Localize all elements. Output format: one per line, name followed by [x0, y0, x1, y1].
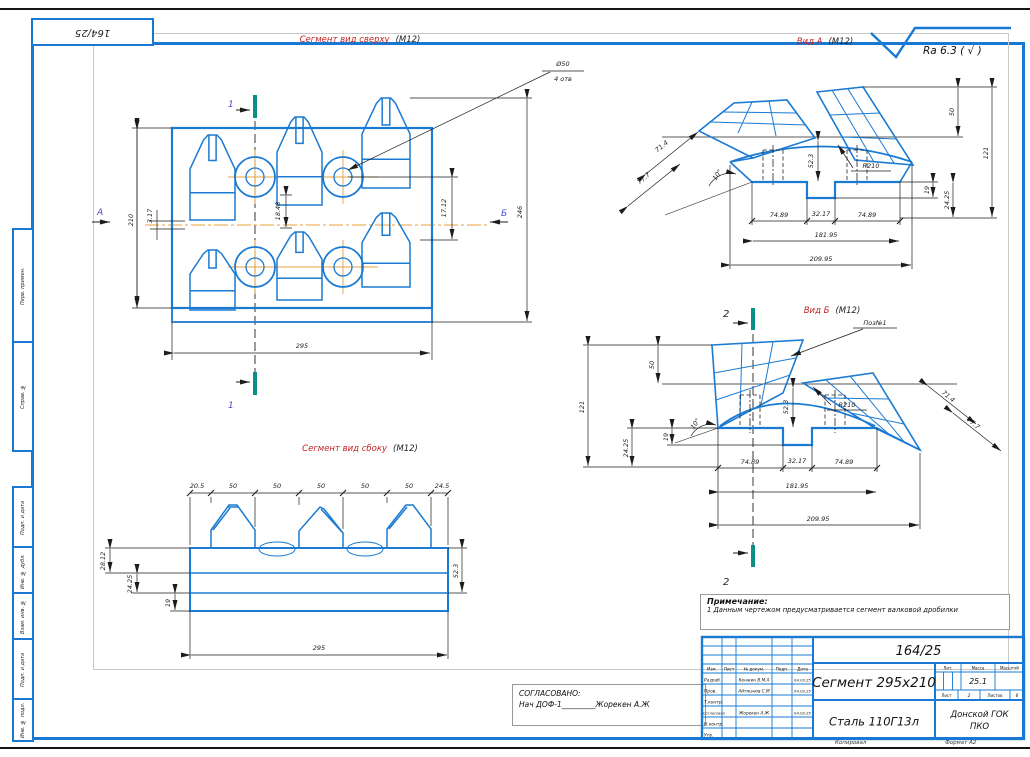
dim-74-89-right: 74.89: [858, 211, 877, 219]
margin-box-podp2: Подп. и дата: [12, 638, 34, 702]
col-izm: Изм.: [707, 667, 717, 672]
paper-edge-bottom: [0, 747, 1030, 749]
dim-121: 121: [578, 401, 586, 413]
dim-20-5: 20.5: [190, 482, 204, 490]
title-side-view: Сегмент вид сбоку(М12): [245, 444, 475, 454]
dim-209-95: 209.95: [810, 255, 833, 263]
dim-32-17: 32.17: [812, 210, 831, 218]
approval-box: СОГЛАСОВАНО: Нач ДОФ-1_________Жорекен А…: [512, 684, 706, 726]
dim-74-89-right: 74.89: [835, 458, 854, 466]
row-role-4: Н.контр.: [704, 722, 724, 728]
row-role-0: Разраб.: [704, 678, 721, 684]
dim-50-2: 50: [273, 482, 281, 490]
section-line-2: [733, 308, 753, 567]
margin-box-vzam: Взам. инв. №: [12, 592, 34, 642]
dim-24-25: 24.25: [943, 191, 951, 210]
mass-label: Масса: [972, 666, 985, 671]
dim-210: 210: [127, 214, 135, 226]
title-block: Изм. Лист № докум. Подп. Дата Разраб. Ке…: [700, 635, 1026, 741]
note-box: Примечание: 1 Данным чертежом предусматр…: [700, 594, 1010, 630]
title-view-a: Вид А(М12): [765, 37, 885, 47]
sheet-value: 2: [968, 693, 971, 699]
dim-3-17: 3.17: [146, 208, 154, 223]
title-top-view: Сегмент вид сверху(М12): [245, 35, 475, 45]
org-line2: ПКО: [970, 722, 989, 732]
scale-label: Масштаб: [1000, 666, 1020, 671]
dim-121: 121: [982, 147, 990, 159]
stamp-doc-number: 164/25: [896, 644, 942, 659]
dim-50-1: 50: [229, 482, 237, 490]
view-a-drawing: 50 121 19 24.25 52.3 R210 10° 71.4 77.7 …: [605, 55, 1025, 305]
part-body: [190, 505, 448, 611]
drawing-sheet: 164/25 Перв. примен. Справ. № Подп. и да…: [0, 0, 1030, 757]
org-line1: Донской ГОК: [949, 710, 1009, 720]
dim-50-5: 50: [405, 482, 413, 490]
view-b-arrow-label: Б: [501, 209, 507, 219]
margin-box-invdubl: Инв. № дубл.: [12, 546, 34, 596]
note-heading: Примечание:: [707, 597, 1003, 606]
section-label-2-top: 2: [723, 309, 729, 320]
dimension-lines: [628, 87, 997, 269]
col-podp: Подп.: [776, 667, 789, 672]
centerlines: [145, 150, 490, 294]
dim-77-7: 77.7: [636, 170, 653, 186]
sheets-value: 6: [1016, 693, 1019, 699]
lit-label: Лит.: [943, 666, 952, 671]
sheets-label: Листов: [988, 693, 1004, 698]
col-data: Дата: [797, 667, 808, 672]
pos-callout: Поз№1: [863, 319, 886, 327]
section-label-1-top: 1: [228, 100, 234, 110]
margin-box-podp1: Подп. и дата: [12, 486, 34, 550]
dim-28-12: 28.12: [99, 552, 107, 571]
dim-17-12: 17.12: [440, 199, 448, 218]
dim-24-25: 24.25: [622, 439, 630, 458]
row-name-3: Жорекен А.Ж: [738, 711, 770, 716]
dim-52-3: 52.3: [807, 154, 815, 168]
dimension-lines: [105, 490, 467, 659]
side-view-drawing: 20.5 50 50 50 50 50 24.5 28.12 24.25 19 …: [85, 445, 530, 675]
approval-heading: СОГЛАСОВАНО:: [519, 688, 699, 699]
row-name-1: Айтжанов С.М: [737, 689, 770, 694]
title-view-b: Вид Б(М12): [772, 306, 892, 316]
dim-r210: R210: [839, 401, 856, 409]
margin-box-perv: Перв. примен.: [12, 228, 34, 345]
teeth: [190, 98, 410, 310]
dim-r210: R210: [863, 162, 880, 170]
col-list: Лист: [724, 667, 735, 672]
paper-edge-top: [0, 8, 1030, 10]
row-date-0: 04.03.25: [794, 678, 811, 683]
corner-doc-number: 164/25: [75, 27, 110, 38]
dim-19: 19: [662, 433, 670, 441]
stamp-part-title: Сегмент 295х210: [812, 675, 936, 691]
dim-18-48: 18.48: [274, 202, 282, 221]
corner-stamp: 164/25: [31, 18, 154, 46]
dimension-lines: [583, 328, 1001, 529]
dim-19: 19: [923, 186, 931, 194]
dim-angle: 10°: [711, 168, 724, 182]
row-name-0: Кенжин В.М.А: [739, 678, 770, 683]
row-role-2: Т.контр.: [704, 700, 723, 706]
view-a-arrow-label: А: [96, 208, 103, 218]
approval-line: Нач ДОФ-1_________Жорекен А.Ж: [519, 699, 699, 710]
dim-209-95: 209.95: [807, 515, 830, 523]
dim-50-4: 50: [361, 482, 369, 490]
dim-50: 50: [948, 108, 956, 116]
format-label: Формат А2: [945, 740, 976, 746]
dim-19: 19: [164, 599, 172, 607]
dim-246: 246: [516, 206, 524, 218]
dim-32-17: 32.17: [788, 457, 807, 465]
view-b-drawing: 2 2: [575, 295, 1015, 595]
row-date-3: 04.03.25: [794, 711, 811, 716]
section-label-1-bottom: 1: [228, 401, 234, 411]
dim-angle: 10°: [689, 417, 702, 431]
mass-value: 25.1: [969, 677, 987, 686]
dim-24-5: 24.5: [435, 482, 449, 490]
part-outline: [699, 87, 913, 198]
dimension-lines: [92, 71, 584, 360]
dim-295: 295: [313, 644, 325, 652]
dim-50: 50: [648, 361, 656, 369]
section-label-2-bottom: 2: [723, 577, 729, 588]
dim-52-3: 52.3: [782, 400, 790, 414]
sheet-label: Лист: [941, 693, 952, 698]
row-date-1: 04.03.25: [794, 689, 811, 694]
margin-box-invpodl: Инв. № подл.: [12, 698, 34, 742]
row-role-3: Согласовал: [703, 712, 726, 716]
hole-callout-dia: Ø50: [555, 60, 569, 68]
stamp-material: Сталь 110Г13л: [829, 715, 920, 729]
roughness-value: Ra 6.3 ( √ ): [923, 45, 982, 57]
dim-295: 295: [296, 342, 308, 350]
dim-24-25: 24.25: [126, 575, 134, 594]
note-text: 1 Данным чертежом предусматривается сегм…: [707, 606, 1003, 614]
section-line-1: [236, 95, 255, 395]
col-doc: № докум.: [744, 667, 765, 672]
dim-50-3: 50: [317, 482, 325, 490]
row-role-1: Пров.: [704, 689, 717, 695]
dim-74-89-left: 74.89: [741, 458, 760, 466]
dim-71-4: 71.4: [654, 139, 670, 154]
copied-label: Копировал: [835, 740, 866, 746]
dim-181-95: 181.95: [815, 231, 838, 239]
hole-callout-qty: 4 отв: [554, 75, 572, 83]
hidden-slots: [740, 390, 845, 433]
margin-box-sprav: Справ. №: [12, 341, 34, 452]
dim-181-95: 181.95: [786, 482, 809, 490]
dim-52-3: 52.3: [452, 564, 460, 578]
top-view-drawing: 1 1: [90, 50, 590, 420]
row-role-5: Утв.: [704, 733, 713, 739]
dim-74-89-left: 74.89: [770, 211, 789, 219]
